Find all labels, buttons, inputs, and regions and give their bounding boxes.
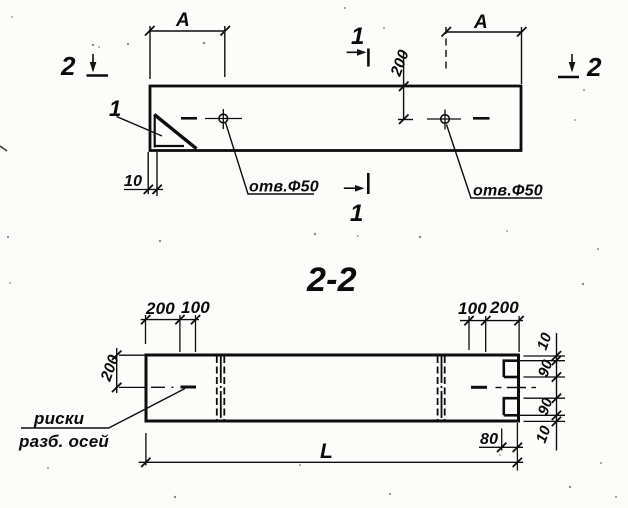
svg-text:А: А (473, 12, 488, 33)
svg-text:10: 10 (124, 173, 142, 190)
svg-text:2-2: 2-2 (306, 261, 357, 299)
svg-text:1: 1 (350, 200, 364, 227)
svg-text:разб. осей: разб. осей (18, 432, 109, 451)
svg-text:А: А (175, 10, 190, 31)
svg-text:200: 200 (489, 298, 519, 317)
svg-text:1: 1 (351, 23, 365, 50)
svg-text:L: L (320, 440, 333, 463)
svg-text:отв.Ф50: отв.Ф50 (249, 179, 319, 196)
svg-text:1: 1 (109, 96, 121, 121)
svg-text:100: 100 (458, 299, 487, 318)
svg-text:2: 2 (60, 51, 76, 81)
svg-text:100: 100 (181, 298, 210, 317)
svg-text:80: 80 (480, 431, 498, 448)
svg-text:2: 2 (586, 52, 602, 82)
svg-text:риски: риски (33, 409, 85, 428)
svg-text:отв.Ф50: отв.Ф50 (473, 183, 543, 200)
